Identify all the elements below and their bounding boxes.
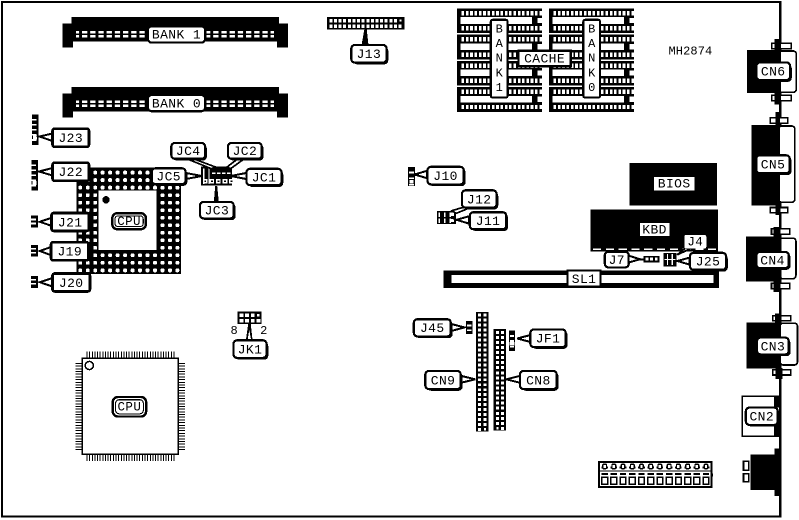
svg-text:CN5: CN5	[761, 158, 786, 173]
svg-text:1: 1	[496, 81, 504, 95]
svg-text:JC2: JC2	[233, 144, 258, 159]
svg-text:CN3: CN3	[761, 339, 786, 354]
svg-text:J4: J4	[687, 236, 703, 250]
svg-text:J25: J25	[696, 255, 721, 270]
svg-text:MH2874: MH2874	[669, 45, 713, 59]
svg-text:BANK 0: BANK 0	[152, 96, 201, 111]
svg-text:J19: J19	[57, 245, 82, 260]
svg-text:CPU: CPU	[118, 401, 142, 415]
svg-text:SL1: SL1	[572, 272, 597, 287]
svg-text:J22: J22	[58, 165, 83, 180]
svg-text:J21: J21	[58, 215, 83, 230]
svg-text:J12: J12	[467, 192, 492, 207]
svg-text:A: A	[588, 37, 596, 51]
svg-text:J45: J45	[420, 321, 445, 336]
svg-text:K: K	[496, 66, 504, 80]
svg-text:J11: J11	[476, 214, 501, 229]
svg-text:8: 8	[230, 324, 238, 338]
svg-text:0: 0	[588, 81, 596, 95]
svg-text:B: B	[496, 23, 504, 37]
svg-text:BIOS: BIOS	[658, 177, 691, 192]
svg-text:K: K	[588, 66, 596, 80]
svg-text:CACHE: CACHE	[524, 52, 565, 67]
svg-text:2: 2	[260, 324, 268, 338]
svg-text:CN2: CN2	[749, 410, 774, 425]
svg-text:N: N	[588, 52, 596, 66]
svg-text:J13: J13	[357, 47, 382, 62]
svg-text:BANK 1: BANK 1	[152, 28, 201, 43]
svg-text:J7: J7	[609, 253, 625, 268]
svg-text:JK1: JK1	[238, 342, 263, 357]
svg-text:KBD: KBD	[642, 222, 667, 237]
svg-text:CN4: CN4	[760, 253, 785, 268]
svg-text:J23: J23	[58, 131, 83, 146]
svg-text:A: A	[496, 37, 504, 51]
svg-text:CPU: CPU	[117, 215, 141, 229]
svg-text:JC4: JC4	[176, 144, 201, 159]
svg-text:JC5: JC5	[156, 170, 181, 185]
svg-text:B: B	[588, 23, 596, 37]
svg-text:JF1: JF1	[536, 332, 561, 347]
svg-text:J10: J10	[433, 169, 458, 184]
svg-text:CN8: CN8	[526, 373, 551, 388]
svg-text:CN6: CN6	[761, 65, 786, 80]
svg-text:JC1: JC1	[252, 170, 277, 185]
svg-text:J20: J20	[59, 276, 84, 291]
svg-text:N: N	[496, 52, 504, 66]
svg-text:JC3: JC3	[205, 204, 230, 219]
svg-text:CN9: CN9	[431, 373, 456, 388]
